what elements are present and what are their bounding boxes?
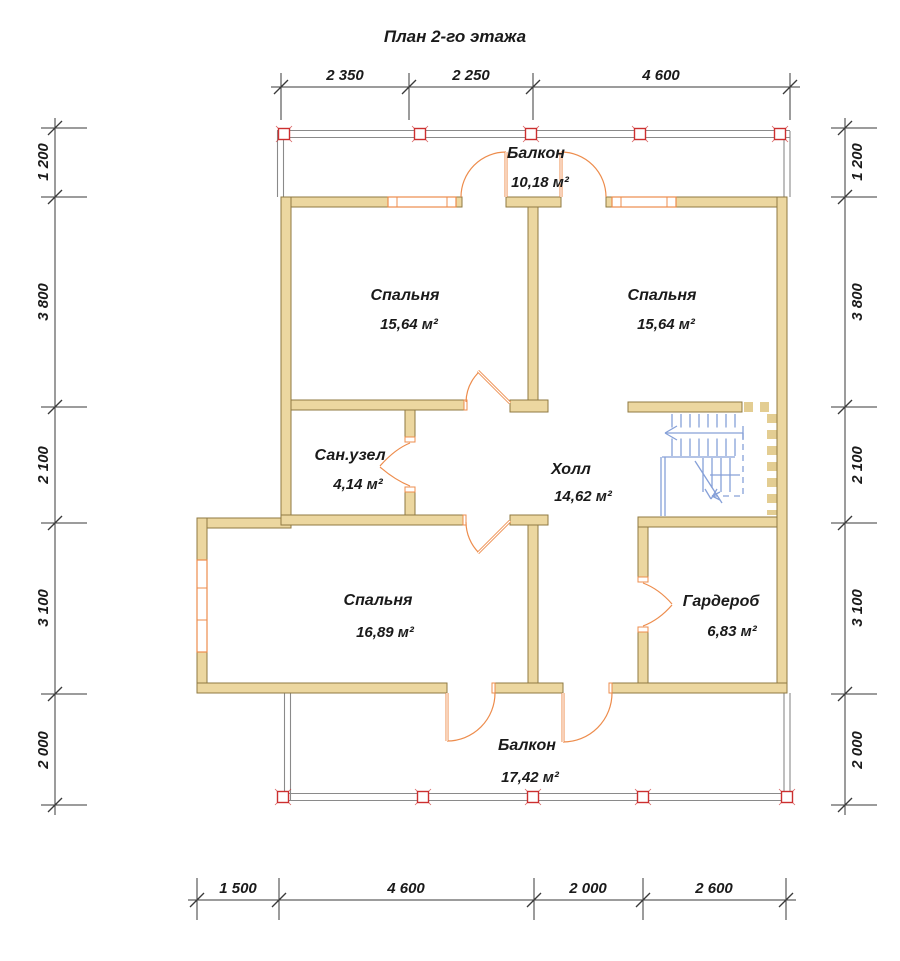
balcony-post (276, 126, 292, 142)
room-area-bedroom-top-right: 15,64 м² (637, 316, 696, 333)
dim-bottom-1: 1 500 (219, 880, 257, 897)
balcony-door-bottom-right (563, 683, 612, 742)
wall-segment (197, 518, 291, 528)
dim-right-4: 3 100 (849, 589, 866, 627)
wall-segment (638, 527, 648, 582)
floor-plan-drawing: План 2-го этажа 2 350 2 250 4 600 1 500 … (0, 0, 900, 961)
room-area-wardrobe: 6,83 м² (707, 623, 757, 640)
dim-top-3: 4 600 (641, 67, 680, 84)
wall-segment (676, 197, 787, 207)
balcony-post (635, 789, 651, 805)
room-name-bedroom-top-right: Спальня (628, 287, 698, 304)
stair-opening-dashed-edge (744, 407, 776, 515)
room-name-bedroom-top-left: Спальня (371, 287, 441, 304)
staircase (661, 414, 743, 516)
balcony-post (525, 789, 541, 805)
dim-left-2: 3 800 (35, 283, 52, 321)
room-name-balcony-bottom: Балкон (498, 737, 556, 754)
dim-right-3: 2 100 (849, 446, 866, 485)
balcony-post (415, 789, 431, 805)
wall-segment (606, 197, 612, 207)
wall-segment (506, 197, 561, 207)
wall-segment (281, 197, 388, 207)
balcony-post (772, 126, 788, 142)
balcony-post (523, 126, 539, 142)
dim-bottom-4: 2 600 (694, 880, 733, 897)
wall-segment (281, 197, 291, 528)
balcony-post (632, 126, 648, 142)
balcony-post (412, 126, 428, 142)
room-area-hall: 14,62 м² (554, 488, 613, 505)
windows (197, 197, 676, 652)
balcony-post (779, 789, 795, 805)
wall-segment (638, 517, 777, 527)
wall-segment (528, 525, 538, 683)
dim-right-5: 2 000 (849, 731, 866, 770)
room-area-bathroom: 4,14 м² (332, 476, 383, 493)
dim-left-4: 3 100 (35, 589, 52, 627)
door-bedroom-top-left (464, 371, 510, 410)
wall-segment (612, 683, 787, 693)
wall-segment (777, 197, 787, 693)
dim-bottom-2: 4 600 (386, 880, 425, 897)
window-left-triple (197, 560, 207, 652)
floor-plan: План 2-го этажа 2 350 2 250 4 600 1 500 … (0, 0, 900, 961)
room-name-wardrobe: Гардероб (683, 593, 761, 610)
dim-bottom-3: 2 000 (568, 880, 607, 897)
dim-top-2: 2 250 (451, 67, 490, 84)
room-area-balcony-bottom: 17,42 м² (501, 769, 560, 786)
dimension-chain-left: 1 200 3 800 2 100 3 100 2 000 (35, 118, 87, 815)
wall-segment (510, 400, 548, 412)
wall-segment (456, 197, 462, 207)
room-name-hall: Холл (550, 461, 591, 478)
wall-segment (528, 207, 538, 400)
dimension-chain-bottom: 1 500 4 600 2 000 2 600 (188, 878, 796, 920)
door-bathroom (380, 437, 415, 492)
room-area-bedroom-top-left: 15,64 м² (380, 316, 439, 333)
wall-segment (510, 515, 548, 525)
balcony-door-bottom-left (447, 683, 495, 741)
room-name-balcony-top: Балкон (507, 145, 565, 162)
dim-right-1: 1 200 (849, 143, 866, 181)
room-name-bedroom-bottom: Спальня (344, 592, 414, 609)
wall-segment (638, 627, 648, 683)
dim-left-5: 2 000 (35, 731, 52, 770)
door-bedroom-bottom (463, 515, 510, 553)
balcony-door-top-left (461, 152, 506, 197)
room-area-bedroom-bottom: 16,89 м² (356, 624, 415, 641)
door-wardrobe (638, 577, 672, 632)
stair-direction-arrow (665, 426, 743, 440)
wall-segment (197, 518, 207, 560)
room-area-balcony-top: 10,18 м² (511, 174, 570, 191)
window-top-left (388, 197, 456, 207)
dim-top-1: 2 350 (325, 67, 364, 84)
wall-segment (495, 683, 563, 693)
room-name-bathroom: Сан.узел (314, 447, 385, 464)
dim-right-2: 3 800 (849, 283, 866, 321)
dim-left-1: 1 200 (35, 143, 52, 181)
wall-segment (197, 683, 447, 693)
wall-segment (281, 515, 466, 525)
window-top-right (612, 197, 676, 207)
dimension-chain-top: 2 350 2 250 4 600 (271, 67, 800, 120)
dimension-chain-right: 1 200 3 800 2 100 3 100 2 000 (831, 118, 877, 815)
wall-segment (628, 402, 742, 412)
balcony-post (275, 789, 291, 805)
wall-segment (291, 400, 467, 410)
dim-left-3: 2 100 (35, 446, 52, 485)
page-title: План 2-го этажа (384, 27, 526, 46)
